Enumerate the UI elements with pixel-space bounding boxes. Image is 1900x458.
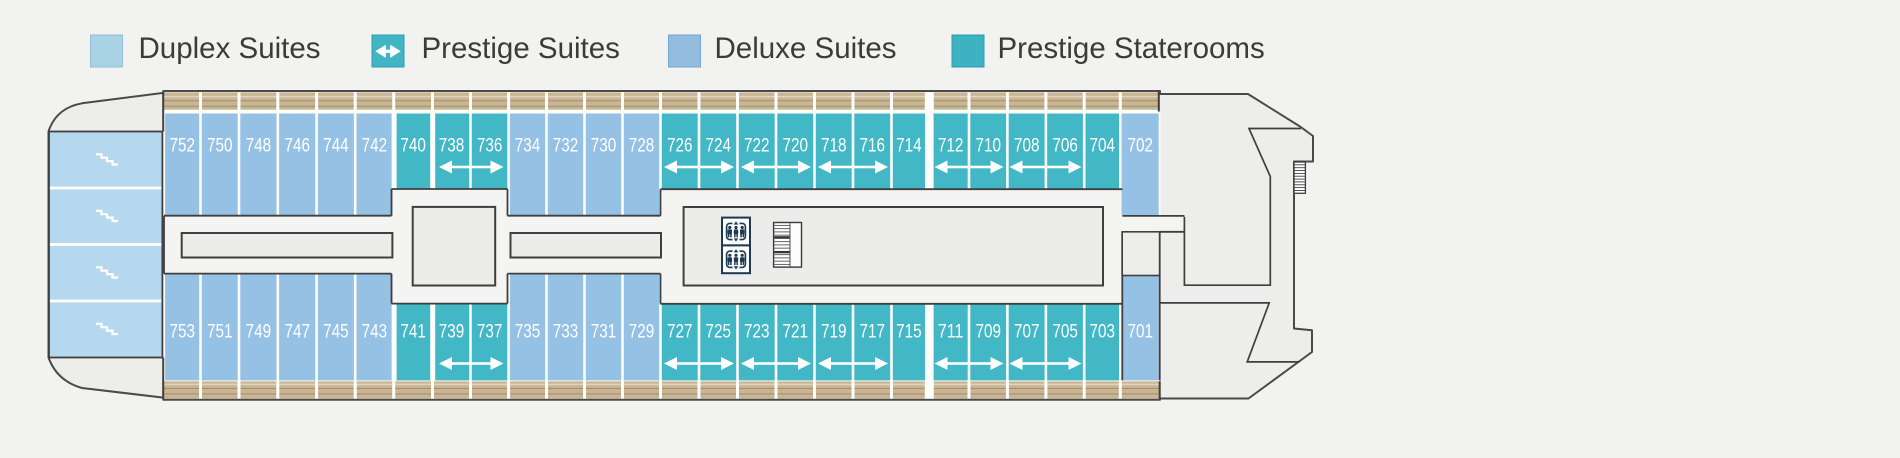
svg-text:749: 749 [246, 322, 272, 343]
svg-text:738: 738 [439, 136, 465, 157]
svg-text:733: 733 [553, 322, 579, 343]
svg-text:736: 736 [477, 136, 503, 157]
svg-text:720: 720 [782, 136, 808, 157]
svg-text:714: 714 [896, 136, 922, 157]
svg-text:Prestige Staterooms: Prestige Staterooms [998, 32, 1265, 65]
svg-text:734: 734 [515, 136, 541, 157]
svg-text:753: 753 [169, 322, 195, 343]
svg-text:706: 706 [1052, 136, 1078, 157]
svg-text:741: 741 [400, 322, 426, 343]
svg-text:737: 737 [477, 322, 503, 343]
svg-text:725: 725 [705, 322, 731, 343]
svg-text:710: 710 [975, 136, 1001, 157]
svg-text:704: 704 [1089, 136, 1115, 157]
svg-text:716: 716 [859, 136, 885, 157]
svg-text:732: 732 [553, 136, 579, 157]
svg-text:702: 702 [1127, 136, 1153, 157]
svg-text:703: 703 [1089, 322, 1115, 343]
svg-text:728: 728 [629, 136, 655, 157]
svg-text:747: 747 [284, 322, 310, 343]
svg-text:740: 740 [400, 136, 426, 157]
svg-text:708: 708 [1014, 136, 1040, 157]
svg-text:727: 727 [667, 322, 693, 343]
svg-text:731: 731 [591, 322, 617, 343]
svg-text:744: 744 [323, 136, 349, 157]
svg-text:701: 701 [1127, 322, 1153, 343]
svg-text:748: 748 [246, 136, 272, 157]
svg-text:723: 723 [744, 322, 770, 343]
svg-text:715: 715 [896, 322, 922, 343]
svg-text:711: 711 [938, 322, 964, 343]
svg-text:752: 752 [169, 136, 195, 157]
svg-text:717: 717 [859, 322, 885, 343]
svg-text:745: 745 [323, 322, 349, 343]
svg-text:709: 709 [975, 322, 1001, 343]
svg-text:726: 726 [667, 136, 693, 157]
svg-text:Duplex Suites: Duplex Suites [139, 32, 321, 65]
svg-text:718: 718 [821, 136, 847, 157]
svg-text:Deluxe Suites: Deluxe Suites [715, 32, 897, 65]
svg-text:712: 712 [938, 136, 964, 157]
svg-text:739: 739 [439, 322, 465, 343]
svg-text:721: 721 [782, 322, 808, 343]
svg-text:729: 729 [629, 322, 655, 343]
svg-text:707: 707 [1014, 322, 1040, 343]
svg-text:719: 719 [821, 322, 847, 343]
svg-text:722: 722 [744, 136, 770, 157]
svg-text:730: 730 [591, 136, 617, 157]
svg-text:742: 742 [362, 136, 388, 157]
svg-text:705: 705 [1052, 322, 1078, 343]
svg-text:735: 735 [515, 322, 541, 343]
svg-text:724: 724 [705, 136, 731, 157]
svg-text:743: 743 [362, 322, 388, 343]
svg-text:751: 751 [207, 322, 233, 343]
svg-text:Prestige Suites: Prestige Suites [422, 32, 620, 65]
svg-text:750: 750 [207, 136, 233, 157]
svg-text:746: 746 [284, 136, 310, 157]
